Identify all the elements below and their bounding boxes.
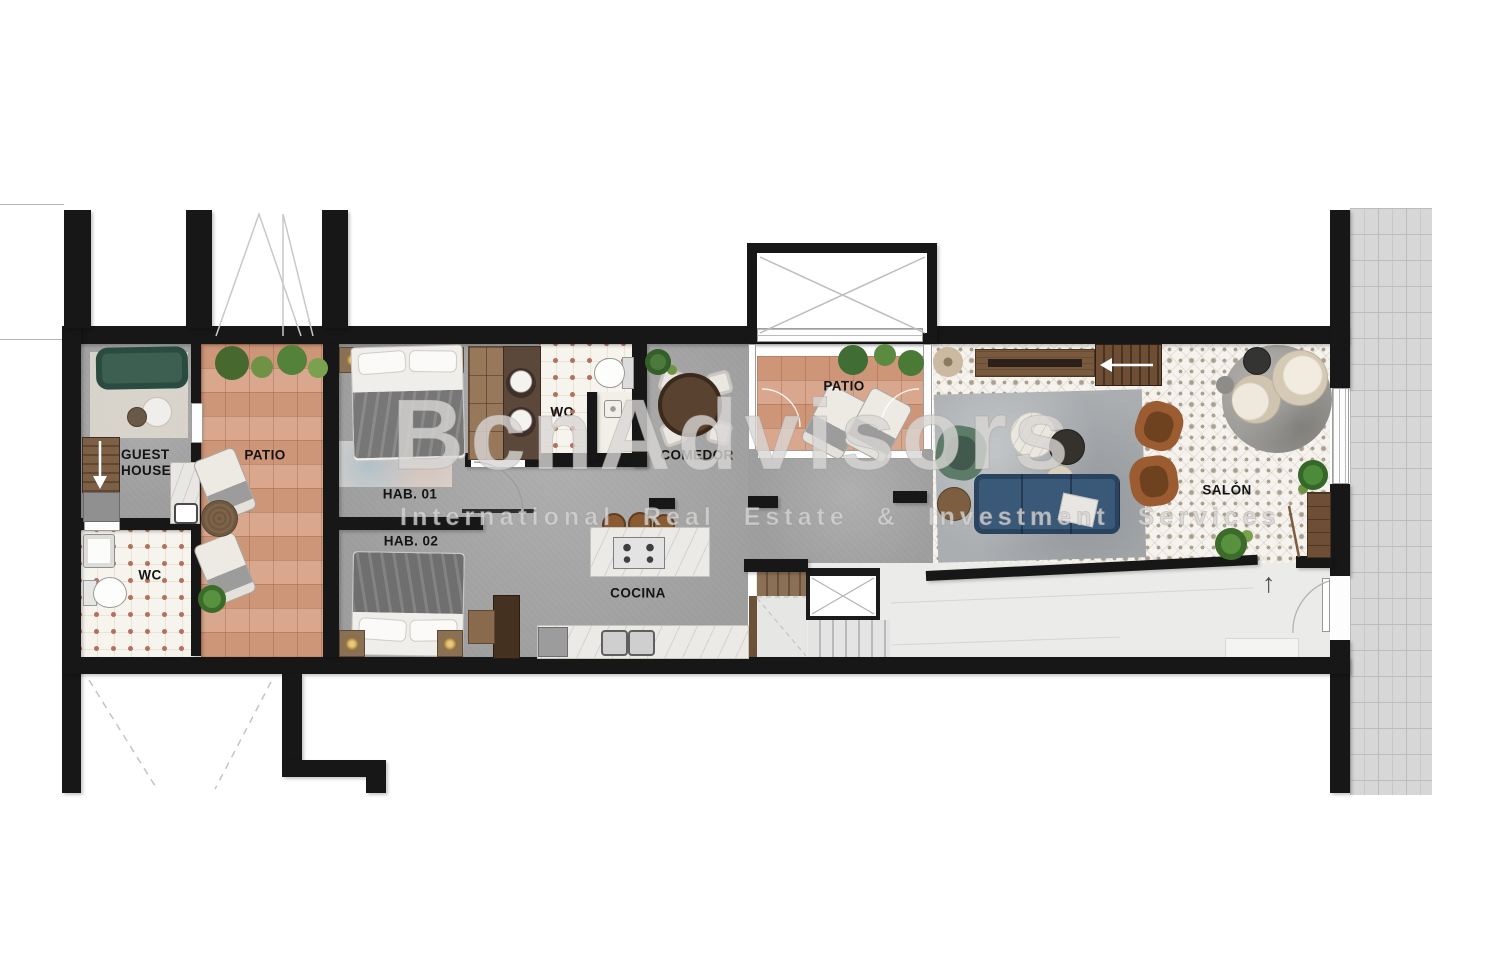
bath-sink-1	[506, 368, 536, 398]
wall-left	[62, 326, 81, 793]
wall-stub-top-c	[322, 210, 348, 328]
salon-bookshelf	[1307, 492, 1331, 558]
wall-stub-corridor-right	[893, 491, 927, 503]
salon-pot-plant	[933, 347, 963, 377]
wall-stub-top-b	[186, 210, 212, 328]
salon-side-table-wood	[937, 487, 971, 521]
hab02-pillow-left	[358, 617, 407, 642]
corridor-floor	[748, 450, 933, 571]
floor-plan: ↑ GUEST HOUSE WC PATIO HAB. 01 HAB. 02 W…	[0, 0, 1500, 973]
label-salon: SALÓN	[1202, 483, 1251, 498]
salon-plant-right	[1298, 460, 1328, 490]
label-cocina: COCINA	[610, 586, 666, 601]
wc-shower	[597, 392, 633, 453]
salon-console-tray	[988, 359, 1082, 367]
wall-l-vertical	[282, 674, 302, 768]
stove	[613, 537, 665, 569]
salon-stairs	[1095, 344, 1162, 386]
salon-side-table-dark	[1049, 429, 1085, 465]
patio-left-plant-small	[198, 585, 226, 613]
guest-side-table	[127, 407, 147, 427]
wall-hab-divider	[339, 517, 483, 530]
dining-table	[658, 373, 722, 437]
salon-armchair-brown-1-cushion	[1141, 408, 1177, 445]
wall-right-upper	[1330, 210, 1350, 388]
wardrobe	[468, 346, 505, 460]
patio-right-plants	[838, 345, 868, 375]
sidewalk	[1350, 208, 1432, 795]
salon-armchair-brown-2-cushion	[1138, 464, 1170, 499]
hab01-bed	[351, 345, 466, 462]
wall-wc-partition	[587, 392, 597, 460]
kitchen-tall-cabinet	[493, 595, 520, 659]
guest-closet	[83, 492, 120, 522]
salon-side-table-dark-2	[1243, 347, 1271, 375]
hab01-pillow-left	[357, 350, 407, 376]
kitchen-sink-left	[601, 630, 628, 656]
guest-stairs	[82, 437, 120, 493]
bath-counter	[503, 346, 541, 460]
label-wc-guest: WC	[138, 568, 161, 583]
guest-wc-sink	[83, 534, 115, 568]
gate-dashed-lines	[89, 680, 271, 789]
kitchen-cabinet-gray	[538, 627, 568, 657]
hab02-lamp-left	[346, 638, 358, 650]
skylight-lines	[216, 214, 313, 336]
door-guest-patio	[191, 403, 203, 443]
label-hab-02: HAB. 02	[384, 534, 439, 549]
guest-sofa	[96, 346, 189, 390]
salon-sofa-throw	[1057, 493, 1098, 528]
entry-wood-strip	[749, 596, 757, 657]
salon-lounge-cream-2	[1272, 350, 1328, 406]
wall-l-horizontal	[282, 760, 386, 777]
wc-shower-drain	[604, 400, 622, 418]
wall-stub-comedor	[649, 498, 675, 509]
patio-left-table	[201, 500, 238, 537]
wall-stub-top-a	[64, 210, 91, 328]
window-salon-right	[1332, 388, 1349, 484]
property-line-top	[0, 204, 64, 205]
salon-armchair-green-cushion	[943, 434, 978, 473]
label-wc-main: WC	[550, 405, 573, 420]
wall-right-mid	[1330, 484, 1350, 576]
hab01-pillow-right	[409, 350, 457, 372]
stair-shaft	[806, 568, 880, 620]
entrance-arrow-icon: ↑	[1262, 568, 1276, 599]
label-patio-left: PATIO	[244, 448, 285, 463]
guest-round-table	[142, 397, 172, 427]
wall-top	[62, 326, 1348, 344]
hab02-nightstand-left	[339, 630, 365, 657]
label-patio-right: PATIO	[823, 379, 864, 394]
guest-wc-toilet	[93, 577, 127, 608]
kitchen-counter	[537, 625, 749, 659]
patio-left-plants	[215, 346, 249, 380]
kitchen-island	[590, 527, 710, 577]
salon-plant-mid	[1215, 528, 1247, 560]
door-opening-entrance	[1332, 576, 1350, 640]
guest-kitchenette-sink	[174, 503, 198, 524]
entry-stairs	[808, 620, 890, 658]
salon-sofa-blue	[974, 474, 1120, 534]
wall-stub-corridor-left	[748, 496, 778, 508]
salon-console	[975, 349, 1095, 377]
glass-patio-right-left	[748, 344, 756, 450]
label-guest-house: GUEST HOUSE	[121, 447, 189, 479]
label-hab-01: HAB. 01	[383, 487, 438, 502]
wall-bottom	[62, 657, 1350, 674]
kitchen-shelf	[468, 610, 495, 644]
comedor-plant	[645, 349, 671, 375]
hab02-lamp-right	[444, 638, 456, 650]
property-line-left	[0, 339, 64, 340]
window-patio-right-top	[757, 328, 923, 342]
wall-patio-hab	[323, 344, 339, 657]
glass-patio-right-right	[923, 344, 932, 450]
storage-room-floor	[757, 596, 807, 657]
wall-hall-top	[744, 559, 808, 572]
entrance-door-leaf	[1322, 578, 1330, 632]
label-comedor: COMEDOR	[660, 448, 733, 463]
wc-toilet	[594, 358, 625, 388]
hab01-blanket	[353, 390, 465, 459]
salon-stone-pouf	[1216, 376, 1234, 394]
kitchen-sink-right	[628, 630, 655, 656]
wall-l-cap	[366, 777, 386, 793]
hab02-blanket	[353, 552, 464, 614]
bath-sink-2	[506, 407, 536, 437]
entry-wood-landing	[757, 572, 806, 596]
hab02-nightstand-right	[437, 630, 463, 657]
